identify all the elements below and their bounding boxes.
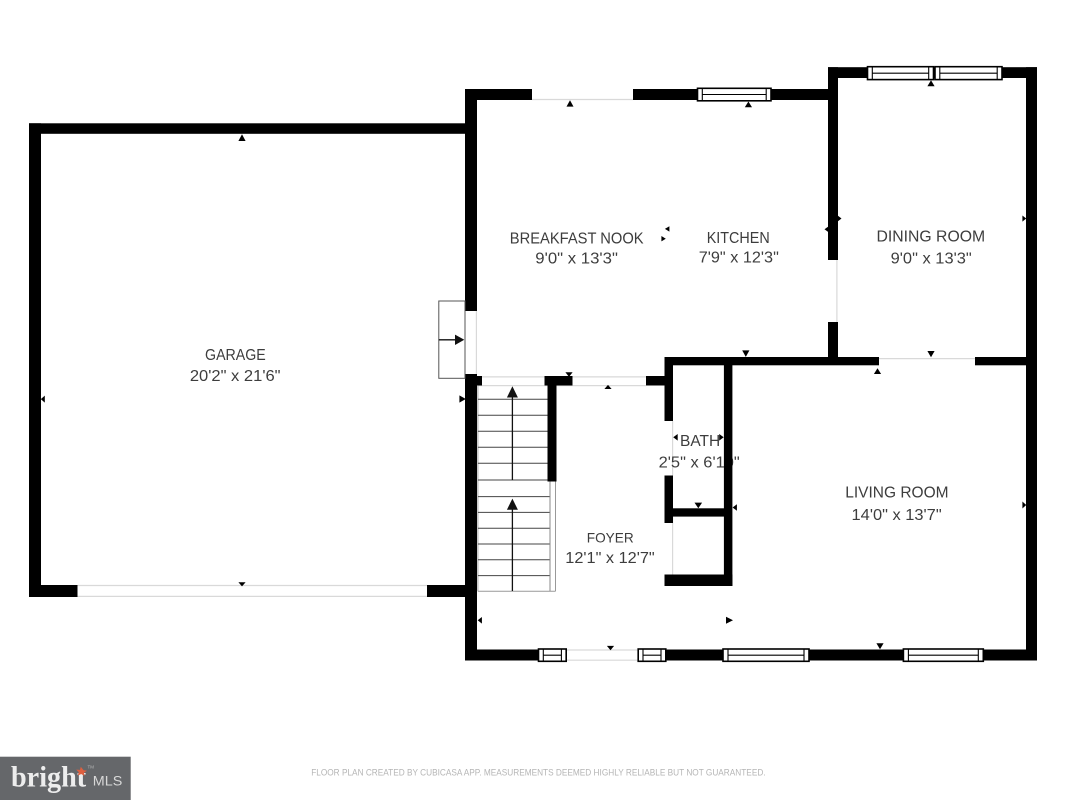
svg-text:9'0" x 13'3": 9'0" x 13'3" [535,251,618,268]
svg-text:FOYER: FOYER [587,529,634,545]
svg-text:DINING ROOM: DINING ROOM [877,228,986,245]
svg-text:bright: bright [11,760,86,793]
svg-text:14'0" x 13'7": 14'0" x 13'7" [852,507,942,524]
svg-text:KITCHEN: KITCHEN [707,230,770,247]
svg-text:GARAGE: GARAGE [205,347,266,364]
svg-text:9'0" x 13'3": 9'0" x 13'3" [891,251,972,268]
svg-text:BREAKFAST NOOK: BREAKFAST NOOK [510,231,644,248]
svg-text:FLOOR PLAN CREATED BY CUBICASA: FLOOR PLAN CREATED BY CUBICASA APP. MEAS… [311,766,765,777]
svg-text:TM: TM [88,765,95,770]
svg-text:MLS: MLS [93,773,123,788]
svg-text:7'9" x 12'3": 7'9" x 12'3" [699,249,779,266]
svg-text:20'2" x 21'6": 20'2" x 21'6" [190,368,281,385]
svg-text:12'1" x 12'7": 12'1" x 12'7" [565,550,654,567]
svg-text:LIVING ROOM: LIVING ROOM [845,485,948,502]
svg-text:BATH: BATH [680,433,720,450]
